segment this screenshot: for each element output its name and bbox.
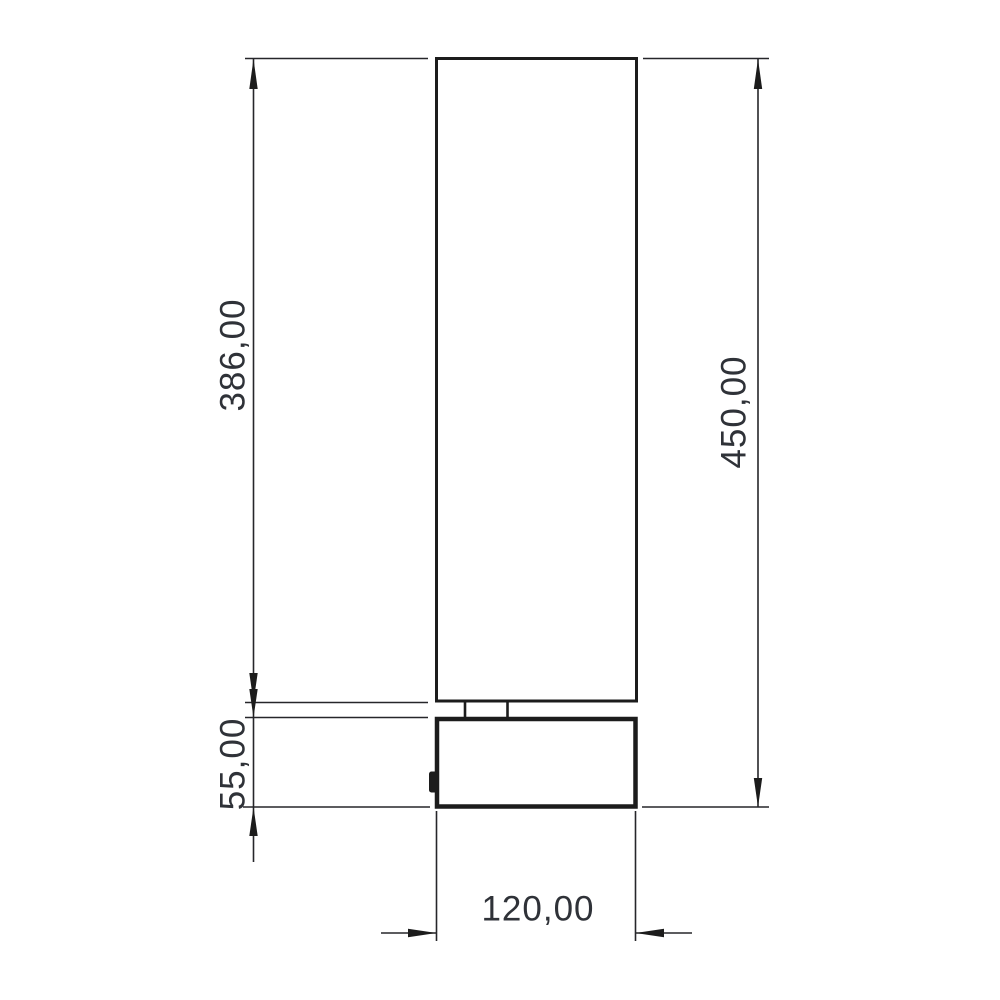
lamp-outline: [429, 59, 637, 807]
lamp-shade-rect: [437, 59, 637, 702]
dimension-label-overall-height: 450,00: [717, 355, 752, 468]
dimension-label-base-height: 55,00: [216, 718, 251, 811]
arrow-shade-height-top: [249, 59, 257, 89]
lamp-technical-drawing: [0, 0, 1000, 1000]
arrow-overall-height-top: [754, 59, 762, 89]
arrow-overall-height-bottom: [754, 778, 762, 807]
drawing-canvas: 386,00 450,00 55,00 120,00: [0, 0, 1000, 1000]
lamp-base-rect: [437, 719, 636, 807]
dimension-label-shade-height: 386,00: [216, 298, 251, 411]
dimension-label-base-width: 120,00: [481, 892, 594, 927]
arrow-base-width-right: [636, 929, 665, 937]
arrow-base-height-bottom: [249, 807, 257, 836]
arrow-base-width-left: [408, 929, 437, 937]
lamp-switch-bump: [429, 772, 438, 793]
